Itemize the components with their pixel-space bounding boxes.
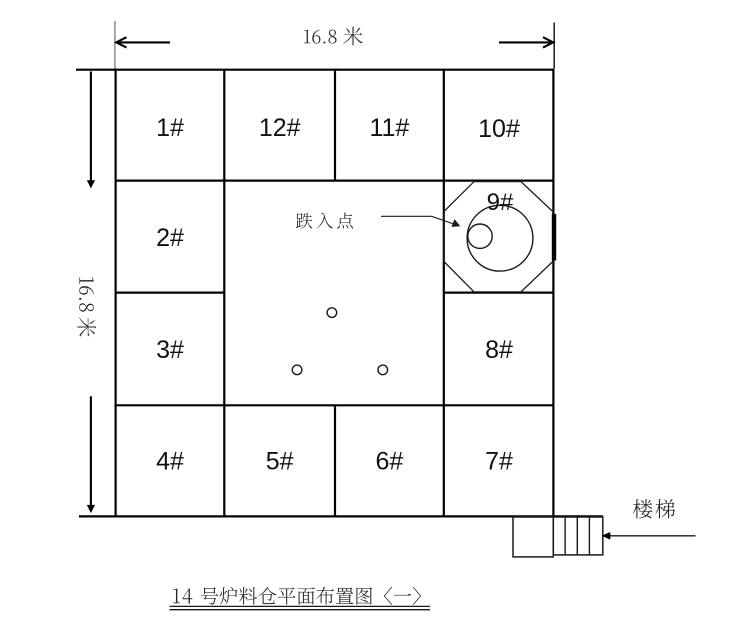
svg-text:1#: 1#	[156, 114, 184, 142]
svg-text:3#: 3#	[156, 336, 184, 364]
svg-text:11#: 11#	[369, 114, 409, 142]
svg-text:7#: 7#	[485, 448, 513, 476]
svg-text:10#: 10#	[478, 115, 520, 143]
svg-text:5#: 5#	[266, 448, 294, 476]
svg-text:8#: 8#	[485, 336, 513, 364]
svg-text:6#: 6#	[375, 448, 403, 476]
svg-text:12#: 12#	[259, 114, 301, 142]
svg-text:9#: 9#	[487, 189, 514, 216]
svg-text:2#: 2#	[156, 224, 184, 252]
svg-text:4#: 4#	[156, 448, 184, 476]
